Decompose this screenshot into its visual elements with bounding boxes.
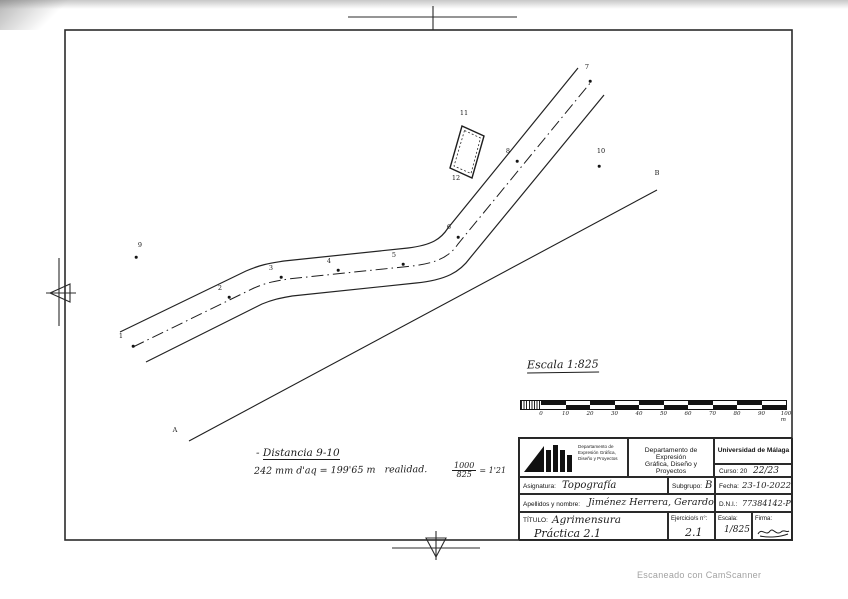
survey-point-label-3: 3 <box>269 264 273 272</box>
dni-cell: D.N.I.: 77384142-P <box>715 494 793 512</box>
asignatura-label: Asignatura: <box>523 483 556 490</box>
scale-bar-segment <box>713 405 738 409</box>
title-block: Departamento de Expresión Gráfica, Diseñ… <box>518 437 792 540</box>
survey-point-dot-10 <box>598 165 601 168</box>
signature-icon <box>756 524 791 540</box>
department-name-cell: Departamento de Expresión Gráfica, Diseñ… <box>628 438 714 477</box>
survey-point-label-A: A <box>173 426 178 434</box>
logo-caption-line3: Diseño y Proyectos <box>578 456 618 461</box>
scale-bar-tick-6: 60 <box>685 411 692 417</box>
scale-note: Escala 1:825 <box>527 358 599 374</box>
department-logo-icon <box>522 442 576 475</box>
survey-point-label-4: 4 <box>327 257 331 265</box>
escala-cell: Escala: 1/825 <box>715 512 752 541</box>
fecha-value: 23-10-2022 <box>742 481 791 491</box>
survey-point-label-1: 1 <box>119 332 123 340</box>
distance-note-title: - Distancia 9-10 <box>256 447 340 459</box>
fraction-denominator: 825 <box>457 471 472 479</box>
asignatura-cell: Asignatura: Topografía <box>519 477 668 494</box>
scale-bar-hatch <box>521 401 541 409</box>
survey-point-label-9: 9 <box>138 241 142 249</box>
scale-bar-tick-7: 70 <box>709 411 716 417</box>
titulo-value2: Práctica 2.1 <box>534 527 601 540</box>
titulo-cell: TÍTULO: Agrimensura Práctica 2.1 <box>519 512 668 541</box>
scale-bar-segment <box>737 405 762 409</box>
scale-bar-tick-1: 10 <box>562 411 569 417</box>
escala-label: Escala: <box>718 516 738 522</box>
dni-value: 77384142-P <box>742 499 791 508</box>
survey-point-label-12: 12 <box>452 174 460 182</box>
firma-cell: Firma: <box>752 512 793 541</box>
scale-bar-segment <box>664 405 689 409</box>
distance-note-bullet: - <box>256 447 260 459</box>
survey-point-label-8: 8 <box>506 147 510 155</box>
ejercicio-cell: Ejercicio/s n°: 2.1 <box>668 512 715 541</box>
scale-bar-segment <box>762 405 787 409</box>
survey-point-label-B: B <box>655 169 660 177</box>
scale-bar-tick-9: 90 <box>758 411 765 417</box>
survey-point-dot-7 <box>589 80 592 83</box>
department-line2: Gráfica, Diseño y Proyectos <box>629 461 713 475</box>
scale-bar-tick-2: 20 <box>587 411 594 417</box>
scale-bar-tick-4: 40 <box>636 411 643 417</box>
scale-fraction: 1000 825 <box>452 462 476 480</box>
survey-point-dot-4 <box>337 269 340 272</box>
scale-bar-segment <box>590 405 615 409</box>
dni-label: D.N.I.: <box>719 501 737 508</box>
scale-fraction-note: 1000 825 = 1'21 <box>452 462 506 480</box>
curso-cell: Curso: 20 22/23 <box>714 464 793 477</box>
survey-point-label-11: 11 <box>460 109 468 117</box>
survey-point-label-10: 10 <box>597 147 605 155</box>
escala-value: 1/825 <box>724 525 750 535</box>
survey-point-dot-6 <box>457 236 460 239</box>
survey-point-label-2: 2 <box>218 284 222 292</box>
logo-cell: Departamento de Expresión Gráfica, Diseñ… <box>519 438 628 477</box>
titulo-label: TÍTULO: <box>523 517 548 524</box>
survey-point-dot-1 <box>132 345 135 348</box>
scale-bar-tick-0: 0 <box>539 411 543 417</box>
ejercicio-value: 2.1 <box>685 526 703 539</box>
survey-point-dot-9 <box>135 256 138 259</box>
subgrupo-value: B <box>705 480 712 491</box>
scale-bar-segment <box>615 405 640 409</box>
survey-point-label-7: 7 <box>585 63 589 71</box>
subgrupo-cell: Subgrupo: B <box>668 477 715 494</box>
department-line1: Departamento de Expresión <box>629 447 713 461</box>
fraction-result: = 1'21 <box>479 466 506 475</box>
logo-caption-line1: Departamento de <box>578 444 614 449</box>
apellidos-cell: Apellidos y nombre: Jiménez Herrera, Ger… <box>519 494 715 512</box>
curso-label: Curso: 20 <box>719 468 747 475</box>
apellidos-label: Apellidos y nombre: <box>523 501 580 508</box>
survey-point-dot-8 <box>516 160 519 163</box>
scale-bar-tick-10: 100 m <box>781 411 792 423</box>
survey-point-dot-2 <box>228 296 231 299</box>
survey-point-label-5: 5 <box>392 251 396 259</box>
survey-point-label-6: 6 <box>447 223 451 231</box>
scale-bar-segment <box>639 405 664 409</box>
distance-formula-note: 242 mm d'aq = 199'65 m realidad. <box>254 464 427 477</box>
scale-bar-segment <box>566 405 591 409</box>
scale-bar-tick-3: 30 <box>611 411 618 417</box>
scale-bar-tick-5: 50 <box>660 411 667 417</box>
titulo-value: Agrimensura <box>552 514 621 526</box>
camscanner-watermark: Escaneado con CamScanner <box>637 570 761 580</box>
logo-caption-line2: Expresión Gráfica, <box>578 450 616 455</box>
scale-bar-ticks: 0102030405060708090100 m <box>520 410 787 420</box>
graphic-scale-bar: 0102030405060708090100 m <box>520 400 787 420</box>
curso-value: 22/23 <box>753 466 779 476</box>
scale-bar-segment <box>541 405 566 409</box>
survey-point-dot-5 <box>402 263 405 266</box>
firma-label: Firma: <box>755 516 772 522</box>
scale-bar-tick-8: 80 <box>734 411 741 417</box>
distance-note-text: Distancia 9-10 <box>263 447 340 460</box>
university-name: Universidad de Málaga <box>718 447 789 454</box>
fecha-cell: Fecha: 23-10-2022 <box>715 477 793 494</box>
survey-point-dot-3 <box>280 276 283 279</box>
fecha-label: Fecha: <box>719 483 739 490</box>
apellidos-value: Jiménez Herrera, Gerardo <box>588 497 714 508</box>
subgrupo-label: Subgrupo: <box>672 483 702 490</box>
asignatura-value: Topografía <box>562 480 616 491</box>
university-cell: Universidad de Málaga <box>714 438 793 464</box>
scale-bar-body <box>520 400 787 410</box>
scale-bar-segment <box>688 405 713 409</box>
scale-bar-checker <box>541 401 786 409</box>
ejercicio-label: Ejercicio/s n°: <box>671 516 707 522</box>
